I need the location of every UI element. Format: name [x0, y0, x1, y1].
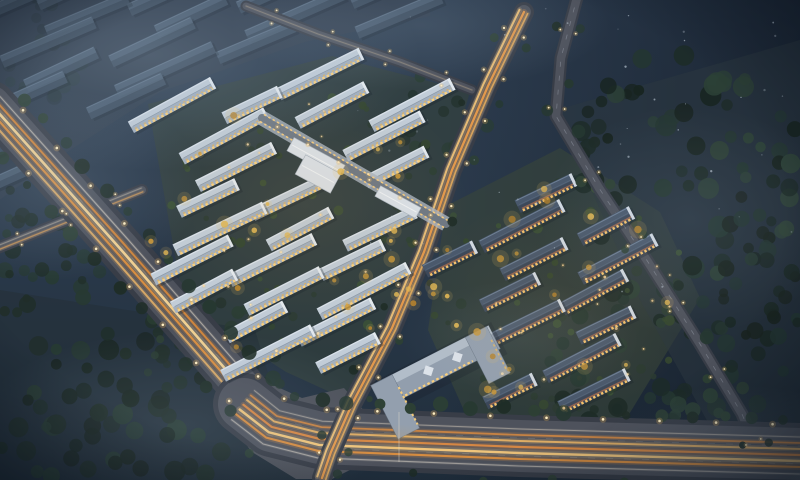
screenshot-root: Night-time aerial architectural renderin…	[0, 0, 800, 480]
aerial-night-render: Night-time aerial architectural renderin…	[0, 0, 800, 480]
vignette	[0, 0, 800, 480]
effects-vignette-layer	[0, 0, 800, 480]
